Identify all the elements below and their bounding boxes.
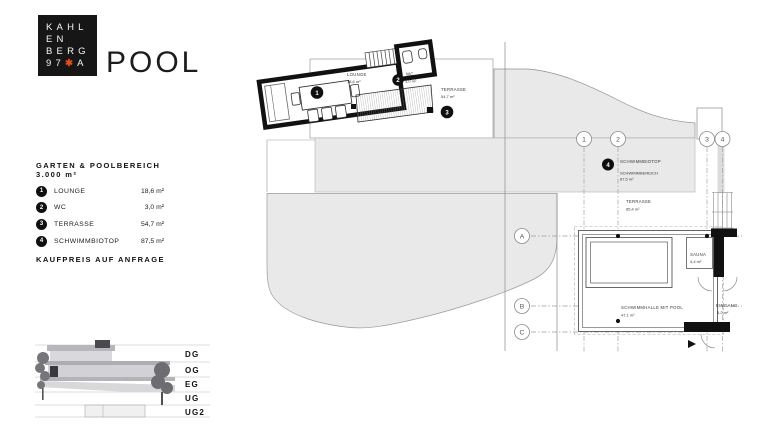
area-pool-hall: 47,1 m² [621, 313, 635, 318]
pool-building [575, 227, 738, 349]
wall-black-right [714, 237, 725, 277]
plot-notch-line [267, 140, 315, 192]
area-lounge: 18,6 m² [347, 79, 361, 84]
area-entrance: 5,2 m² [717, 310, 729, 315]
tree-icon [35, 352, 50, 400]
floor-label-eg: EG [185, 380, 199, 389]
area-sauna: 4,4 m² [690, 259, 702, 264]
label-terrace-lower: TERRASSE [626, 199, 651, 204]
building-section: DG OG EG UG UG2 [28, 336, 213, 428]
label-sauna: SAUNA [690, 252, 706, 257]
garden-area-blob [267, 194, 557, 328]
label-entrance: EINGANG [716, 303, 738, 308]
entrance-arrow-icon [688, 340, 696, 348]
label-wc: WC [406, 72, 414, 77]
floor-label-ug2: UG2 [185, 408, 205, 417]
tree-icon [151, 362, 173, 405]
label-terrace-upper: TERRASSE [441, 87, 466, 92]
area-terrace-lower: 85,4 m² [626, 207, 640, 212]
column-dot [616, 319, 620, 323]
floor-label-ug: UG [185, 394, 199, 403]
svg-text:B: B [520, 304, 525, 311]
stair-wall-strip [718, 145, 725, 193]
svg-text:A: A [520, 234, 525, 241]
deck-post [351, 104, 356, 109]
wall-black-top-right [711, 229, 737, 238]
page: KAHL EN BERG 97✱A POOL GARTEN & POOLBERE… [0, 0, 770, 433]
svg-text:3: 3 [705, 137, 709, 144]
svg-text:1: 1 [582, 137, 586, 144]
svg-text:2: 2 [616, 137, 620, 144]
area-wc: 3,0 m² [405, 79, 417, 84]
garden-area-top [494, 69, 695, 138]
room-marker-3: 3 [441, 106, 454, 119]
label-lounge: LOUNGE [347, 72, 367, 77]
sublabel-biotop: SCHWIMMBEREICH [620, 171, 658, 176]
wc-room [396, 42, 434, 79]
column-dot [616, 234, 620, 238]
room-marker-1: 1 [311, 86, 324, 99]
label-biotop: SCHWIMMBIOTOP [620, 159, 661, 164]
pool [586, 238, 672, 288]
label-pool-hall: SCHWIMMHALLE MIT POOL [621, 305, 683, 310]
floor-label-dg: DG [185, 350, 199, 359]
room-marker-4: 4 [602, 159, 614, 171]
room-marker-2: 2 [392, 74, 403, 85]
deck-post [427, 107, 433, 113]
svg-text:4: 4 [721, 137, 725, 144]
svg-text:C: C [520, 330, 525, 337]
area-biotop: 87,5 m² [620, 177, 634, 182]
column-dot [705, 234, 709, 238]
area-terrace-upper: 54,7 m² [441, 94, 455, 99]
floor-label-og: OG [185, 366, 200, 375]
wall-black-bottom [684, 322, 730, 332]
